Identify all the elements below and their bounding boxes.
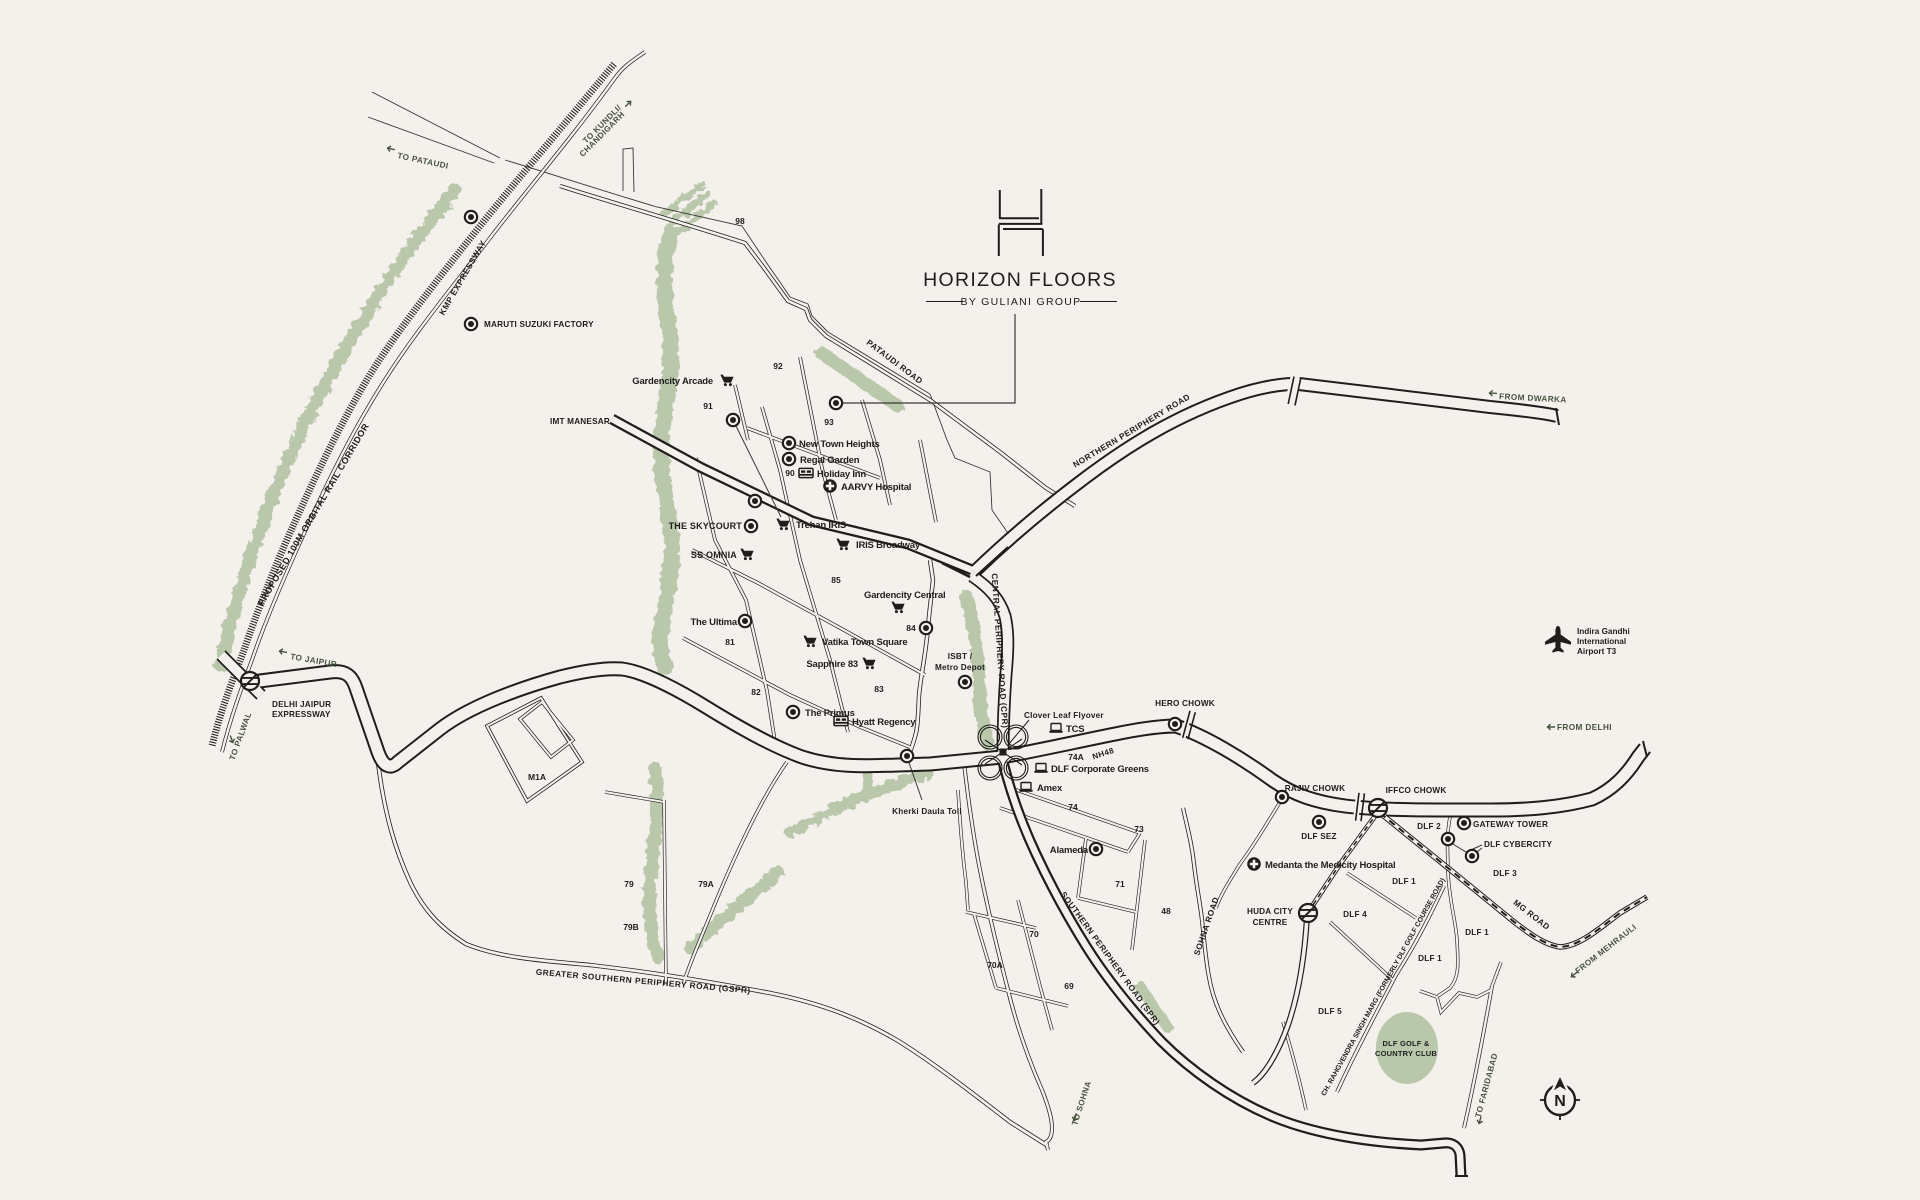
svg-text:Gardencity Central: Gardencity Central (864, 590, 945, 601)
svg-text:International: International (1577, 637, 1626, 646)
svg-text:79: 79 (624, 879, 634, 889)
svg-text:IMT MANESAR: IMT MANESAR (550, 417, 610, 426)
svg-text:DLF 4: DLF 4 (1343, 910, 1367, 919)
svg-text:DLF 3: DLF 3 (1493, 869, 1517, 878)
svg-text:DLF Corporate Greens: DLF Corporate Greens (1051, 764, 1149, 775)
svg-text:91: 91 (703, 401, 713, 411)
svg-text:DLF 1: DLF 1 (1465, 928, 1489, 937)
svg-text:Trehan IRIS: Trehan IRIS (796, 520, 846, 531)
svg-text:74A: 74A (1068, 752, 1084, 762)
svg-text:Metro Depot: Metro Depot (935, 663, 985, 672)
svg-text:IFFCO CHOWK: IFFCO CHOWK (1386, 786, 1447, 795)
svg-text:Kherki Daula Toll: Kherki Daula Toll (892, 807, 962, 816)
svg-text:Indira Gandhi: Indira Gandhi (1577, 627, 1630, 636)
svg-text:CENTRE: CENTRE (1253, 918, 1288, 927)
svg-text:SS OMNIA: SS OMNIA (691, 550, 737, 560)
svg-text:RAJIV CHOWK: RAJIV CHOWK (1285, 784, 1345, 793)
svg-text:98: 98 (735, 216, 745, 226)
svg-text:THE SKYCOURT: THE SKYCOURT (669, 521, 743, 531)
svg-text:Alameda: Alameda (1050, 845, 1089, 856)
svg-text:COUNTRY CLUB: COUNTRY CLUB (1375, 1049, 1437, 1058)
svg-text:DELHI JAIPUR: DELHI JAIPUR (272, 700, 331, 709)
svg-text:Clover Leaf Flyover: Clover Leaf Flyover (1024, 711, 1104, 720)
svg-text:MARUTI SUZUKI FACTORY: MARUTI SUZUKI FACTORY (484, 320, 594, 329)
svg-text:69: 69 (1064, 981, 1074, 991)
svg-text:GATEWAY TOWER: GATEWAY TOWER (1473, 820, 1548, 829)
svg-text:EXPRESSWAY: EXPRESSWAY (272, 710, 331, 719)
svg-text:Amex: Amex (1037, 783, 1063, 794)
svg-text:73: 73 (1134, 824, 1144, 834)
svg-text:84: 84 (906, 623, 916, 633)
svg-text:DLF 2: DLF 2 (1417, 822, 1441, 831)
svg-text:DLF SEZ: DLF SEZ (1301, 832, 1337, 841)
svg-text:AARVY Hospital: AARVY Hospital (841, 482, 911, 493)
svg-text:Gardencity Arcade: Gardencity Arcade (632, 376, 713, 387)
svg-text:TCS: TCS (1066, 724, 1084, 735)
svg-text:FROM DELHI: FROM DELHI (1557, 723, 1612, 732)
svg-text:Holiday Inn: Holiday Inn (817, 469, 866, 480)
svg-text:DLF 1: DLF 1 (1392, 877, 1416, 886)
svg-text:The Primus: The Primus (805, 708, 855, 719)
svg-text:DLF GOLF &: DLF GOLF & (1383, 1039, 1430, 1048)
svg-text:New Town Heights: New Town Heights (799, 439, 880, 450)
svg-text:Hyatt Regency: Hyatt Regency (852, 717, 916, 728)
svg-text:79A: 79A (698, 879, 714, 889)
svg-text:HORIZON FLOORS: HORIZON FLOORS (923, 269, 1117, 291)
svg-text:71: 71 (1115, 879, 1125, 889)
svg-text:ISBT /: ISBT / (948, 652, 973, 661)
svg-text:82: 82 (751, 687, 761, 697)
svg-text:Regal Garden: Regal Garden (800, 455, 860, 466)
svg-text:DLF CYBERCITY: DLF CYBERCITY (1484, 840, 1552, 849)
svg-text:90: 90 (785, 468, 795, 478)
svg-text:IRIS Broadway: IRIS Broadway (856, 540, 921, 551)
svg-text:N: N (1554, 1093, 1566, 1110)
svg-text:Airport T3: Airport T3 (1577, 647, 1617, 656)
svg-text:79B: 79B (623, 922, 639, 932)
svg-text:70A: 70A (987, 960, 1003, 970)
svg-text:HUDA CITY: HUDA CITY (1247, 907, 1293, 916)
svg-text:DLF 1: DLF 1 (1418, 954, 1442, 963)
svg-text:93: 93 (824, 417, 834, 427)
svg-text:M1A: M1A (528, 772, 546, 782)
svg-text:Sapphire 83: Sapphire 83 (806, 659, 858, 670)
svg-text:HERO CHOWK: HERO CHOWK (1155, 699, 1215, 708)
svg-text:92: 92 (773, 361, 783, 371)
svg-text:48: 48 (1161, 906, 1171, 916)
svg-text:BY GULIANI GROUP: BY GULIANI GROUP (961, 296, 1082, 308)
svg-text:81: 81 (725, 637, 735, 647)
svg-text:The Ultima: The Ultima (690, 617, 737, 628)
svg-text:DLF 5: DLF 5 (1318, 1007, 1342, 1016)
svg-text:85: 85 (831, 575, 841, 585)
svg-text:70: 70 (1029, 929, 1039, 939)
svg-text:Medanta the Medicity Hospital: Medanta the Medicity Hospital (1265, 860, 1395, 871)
svg-text:74: 74 (1068, 802, 1078, 812)
svg-text:83: 83 (874, 684, 884, 694)
svg-text:Vatika Town Square: Vatika Town Square (822, 637, 907, 648)
